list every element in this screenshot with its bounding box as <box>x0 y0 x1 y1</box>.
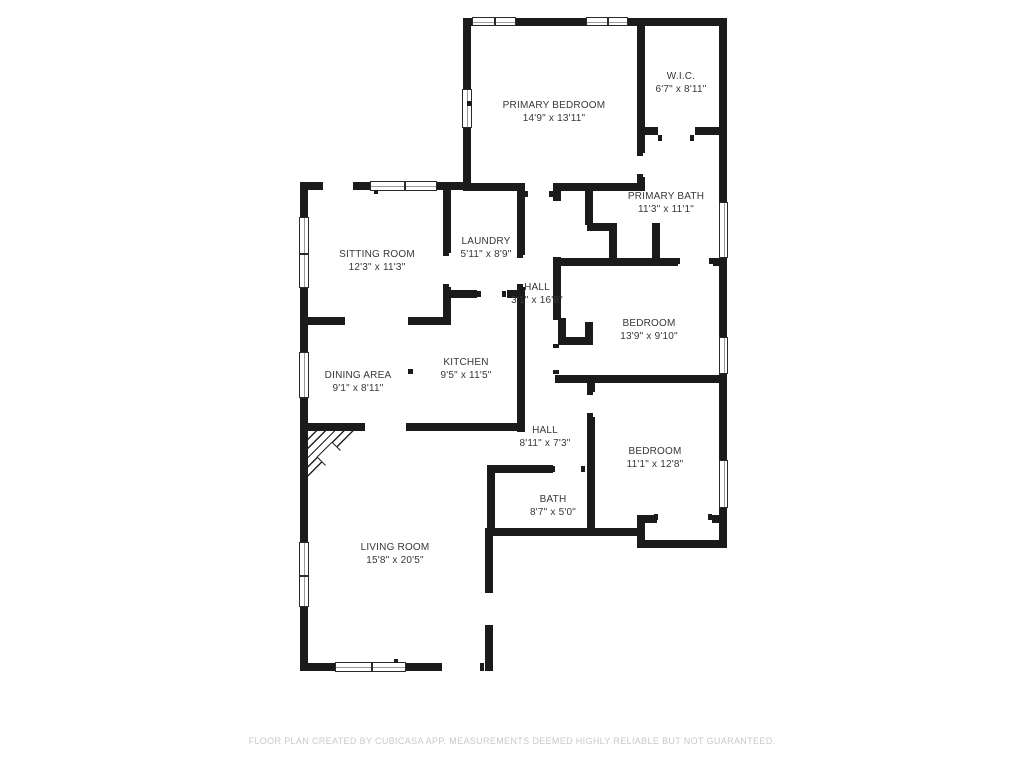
window-glass-line <box>304 353 305 397</box>
door-tick <box>654 514 658 520</box>
room-label-living-room-12: LIVING ROOM15'8" x 20'5" <box>361 541 430 567</box>
room-dimensions: 3'1" x 16'8" <box>511 294 563 307</box>
room-label-bedroom-6: BEDROOM13'9" x 9'10" <box>620 317 677 343</box>
wall <box>585 191 593 225</box>
door-tick <box>467 101 472 106</box>
wall <box>300 182 323 190</box>
room-dimensions: 15'8" x 20'5" <box>361 554 430 567</box>
window-mullion <box>300 575 308 577</box>
wall <box>443 187 451 253</box>
room-name: KITCHEN <box>441 356 492 369</box>
wall <box>585 322 593 345</box>
room-dimensions: 13'9" x 9'10" <box>620 330 677 343</box>
room-dimensions: 12'3" x 11'3" <box>339 261 415 274</box>
room-name: HALL <box>520 424 571 437</box>
door-tick <box>549 191 553 197</box>
window-glass-line <box>724 203 725 257</box>
room-label-hall-5: HALL3'1" x 16'8" <box>511 281 563 307</box>
window <box>299 217 309 288</box>
room-dimensions: 11'3" x 11'1" <box>628 203 704 216</box>
floor-plan-canvas: PRIMARY BEDROOM14'9" x 13'11"W.I.C.6'7" … <box>0 0 1024 768</box>
window <box>586 17 628 26</box>
room-label-primary-bedroom-0: PRIMARY BEDROOM14'9" x 13'11" <box>503 99 606 125</box>
door-tick <box>581 466 585 472</box>
room-dimensions: 14'9" x 13'11" <box>503 112 606 125</box>
door-tick <box>477 291 481 297</box>
door-tick <box>637 174 643 178</box>
room-dimensions: 6'7" x 8'11" <box>656 83 707 96</box>
room-label-bedroom-10: BEDROOM11'1" x 12'8" <box>627 445 684 471</box>
room-dimensions: 9'1" x 8'11" <box>325 382 392 395</box>
wall <box>637 177 645 191</box>
door-tick <box>374 190 378 194</box>
wall <box>517 287 525 432</box>
door-tick <box>690 135 694 141</box>
wall <box>485 528 493 590</box>
door-tick <box>709 258 713 264</box>
window <box>719 337 728 374</box>
door-tick <box>708 514 712 520</box>
fireplace-hatch <box>307 430 361 484</box>
door-tick <box>438 663 442 671</box>
door-tick <box>480 663 484 671</box>
room-name: PRIMARY BEDROOM <box>503 99 606 112</box>
wall <box>713 258 727 266</box>
wall <box>553 191 561 201</box>
room-name: W.I.C. <box>656 70 707 83</box>
room-name: BEDROOM <box>620 317 677 330</box>
door-tick <box>658 135 662 141</box>
window <box>472 17 516 26</box>
door-tick <box>637 152 643 156</box>
wall <box>485 628 493 671</box>
room-name: BATH <box>530 493 576 506</box>
door-tick <box>551 466 555 472</box>
wall <box>695 127 727 135</box>
wall <box>637 540 727 548</box>
disclaimer-text: FLOOR PLAN CREATED BY CUBICASA APP. MEAS… <box>249 736 776 746</box>
wall <box>300 317 345 325</box>
window <box>299 542 309 607</box>
window-glass-line <box>467 90 468 127</box>
door-tick <box>502 291 506 297</box>
room-label-dining-area-7: DINING AREA9'1" x 8'11" <box>325 369 392 395</box>
room-name: DINING AREA <box>325 369 392 382</box>
door-tick <box>587 391 593 395</box>
room-name: LIVING ROOM <box>361 541 430 554</box>
window <box>462 89 472 128</box>
room-name: SITTING ROOM <box>339 248 415 261</box>
room-label-laundry-4: LAUNDRY5'11" x 8'9" <box>461 235 512 261</box>
wall <box>712 515 727 523</box>
room-label-bath-11: BATH8'7" x 5'0" <box>530 493 576 519</box>
door-tick <box>587 413 593 417</box>
wall <box>652 223 660 258</box>
wall <box>451 290 477 298</box>
wall <box>557 258 678 266</box>
room-label-sitting-room-3: SITTING ROOM12'3" x 11'3" <box>339 248 415 274</box>
wall <box>308 423 365 431</box>
wall <box>487 465 553 473</box>
door-tick <box>517 254 523 258</box>
room-label-kitchen-8: KITCHEN9'5" x 11'5" <box>441 356 492 382</box>
room-label-primary-bath-2: PRIMARY BATH11'3" x 11'1" <box>628 190 704 216</box>
door-tick <box>443 284 449 288</box>
room-label-w-i-c-1: W.I.C.6'7" x 8'11" <box>656 70 707 96</box>
window-glass-line <box>724 338 725 373</box>
door-tick <box>676 258 680 264</box>
room-dimensions: 5'11" x 8'9" <box>461 248 512 261</box>
wall <box>406 423 523 431</box>
room-dimensions: 11'1" x 12'8" <box>627 458 684 471</box>
room-dimensions: 8'7" x 5'0" <box>530 506 576 519</box>
fireplace-diamond <box>316 441 347 472</box>
door-tick <box>485 625 493 629</box>
window-mullion <box>404 182 406 190</box>
door-tick <box>553 370 559 374</box>
door-tick <box>524 191 528 197</box>
wall <box>487 465 495 536</box>
window-mullion <box>607 18 609 25</box>
wall <box>609 225 617 258</box>
wall <box>408 317 451 325</box>
room-name: LAUNDRY <box>461 235 512 248</box>
wall <box>353 182 370 190</box>
wall <box>487 528 645 536</box>
door-tick <box>443 252 449 256</box>
wall <box>463 183 525 191</box>
wall <box>587 417 595 528</box>
door-tick <box>553 344 559 348</box>
window <box>719 202 728 258</box>
room-name: BEDROOM <box>627 445 684 458</box>
window-glass-line <box>724 461 725 507</box>
window <box>719 460 728 508</box>
window-mullion <box>300 253 308 255</box>
floor-plan: PRIMARY BEDROOM14'9" x 13'11"W.I.C.6'7" … <box>0 0 1024 768</box>
wall <box>555 375 727 383</box>
window-mullion <box>371 663 373 671</box>
room-name: HALL <box>511 281 563 294</box>
wall <box>517 187 525 255</box>
room-dimensions: 9'5" x 11'5" <box>441 369 492 382</box>
room-name: PRIMARY BATH <box>628 190 704 203</box>
room-label-hall-9: HALL8'11" x 7'3" <box>520 424 571 450</box>
window <box>335 662 406 672</box>
door-tick <box>394 659 398 663</box>
window-mullion <box>494 18 496 25</box>
door-tick <box>408 369 413 374</box>
door-tick <box>485 589 493 593</box>
window <box>370 181 437 191</box>
wall <box>640 127 658 135</box>
room-dimensions: 8'11" x 7'3" <box>520 437 571 450</box>
window <box>299 352 309 398</box>
